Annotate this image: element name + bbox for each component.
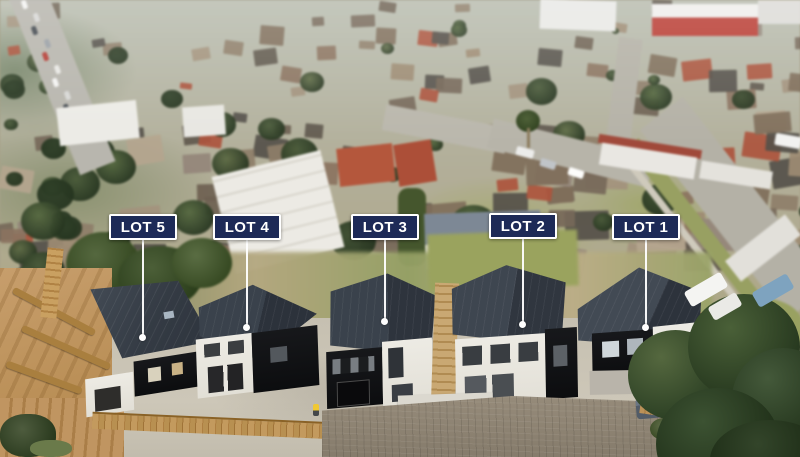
lot-5-pointer-dot [139,334,146,341]
lot-1-pointer-line [645,239,647,328]
lot-4-label: LOT 4 [213,214,281,240]
lot-1-pointer-dot [642,324,649,331]
lot-markers: LOT 5 LOT 4 LOT 3 LOT 2 LOT 1 [0,0,800,457]
lot-1-label: LOT 1 [612,214,680,240]
lot-5-pointer-line [142,239,144,338]
lot-2-label: LOT 2 [489,213,557,239]
lot-3-pointer-dot [381,318,388,325]
lot-3-pointer-line [384,239,386,322]
lot-5-label: LOT 5 [109,214,177,240]
lot-2-pointer-dot [519,321,526,328]
lot-3-label: LOT 3 [351,214,419,240]
lot-2-pointer-line [522,238,524,325]
aerial-photo: LOT 5 LOT 4 LOT 3 LOT 2 LOT 1 [0,0,800,457]
lot-4-pointer-line [246,239,248,328]
lot-4-pointer-dot [243,324,250,331]
